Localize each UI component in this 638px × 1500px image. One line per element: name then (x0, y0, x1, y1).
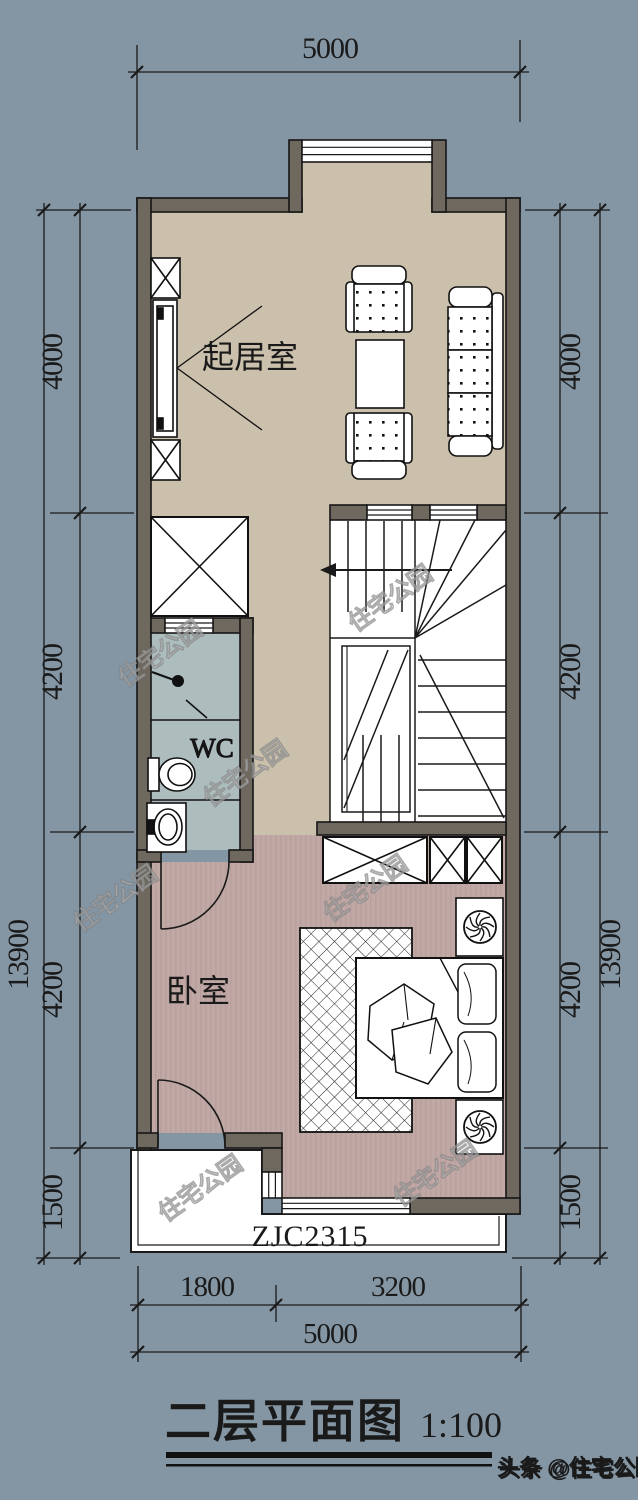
bay-jamb-right (432, 140, 446, 212)
title-block: 二层平面图 1:100 (165, 1396, 502, 1467)
dim-right-4000: 4000 (554, 334, 587, 390)
stair-top-wall-c (477, 505, 506, 520)
dim-left-4200a: 4200 (36, 644, 69, 700)
title-underline-thick (166, 1452, 492, 1458)
wc-right-wall (240, 618, 253, 862)
living-room-label: 起居室 (202, 339, 298, 375)
stair-top-wall-b (412, 505, 430, 520)
title-underline-thin (166, 1464, 492, 1467)
south-wall-right (410, 1198, 520, 1214)
armchair-top (346, 266, 412, 332)
dim-right-4200a: 4200 (554, 644, 587, 700)
toilet (148, 758, 195, 791)
dim-left-1500: 1500 (36, 1175, 69, 1231)
dim-right-4200b: 4200 (554, 962, 587, 1018)
dim-left-total: 13900 (2, 920, 35, 990)
bed (356, 958, 503, 1098)
credit-badge: 头条 @住宅公园 头条 @住宅公园 (497, 1455, 638, 1482)
wc-label: WC (190, 733, 234, 763)
top-wall-left (137, 198, 302, 212)
void-box (151, 517, 248, 616)
floor-plan-drawing: ZJC2315 (0, 0, 638, 1500)
dim-right-1500: 1500 (554, 1175, 587, 1231)
pillow-2 (458, 1032, 496, 1092)
stair-bottom-wall (317, 822, 506, 835)
stair-window-right (430, 505, 477, 520)
wardrobes (323, 837, 502, 883)
plan-scale: 1:100 (420, 1405, 502, 1445)
dim-left-4200b: 4200 (36, 962, 69, 1018)
stair-top-wall-a (330, 505, 367, 520)
dim-bottom-1800: 1800 (180, 1271, 235, 1303)
wc-south-wall-b (229, 850, 253, 862)
dim-left-4000: 4000 (36, 334, 69, 390)
pillow-1 (458, 964, 496, 1024)
fan-icon (464, 911, 496, 943)
credit-text: 头条 @住宅公园 (497, 1455, 638, 1480)
south-wall-b (225, 1133, 282, 1148)
balcony-window-label: ZJC2315 (251, 1220, 368, 1253)
floor-plan-page: ZJC2315 (0, 0, 638, 1500)
dim-bottom-3200: 3200 (371, 1271, 426, 1303)
dim-right-total: 13900 (594, 920, 627, 990)
armchair-bottom (346, 413, 412, 479)
bay-window (302, 140, 432, 162)
bay-jamb-left (289, 140, 302, 212)
corner-window-stub (262, 1148, 282, 1172)
right-wall (506, 198, 520, 1214)
nightstand-top (456, 898, 503, 956)
washbasin (147, 803, 186, 852)
sofa (448, 287, 503, 456)
bay-floor (302, 162, 432, 214)
dim-bottom-5000: 5000 (303, 1318, 358, 1350)
stair-window-left (367, 505, 412, 520)
south-wall-a (137, 1133, 158, 1148)
bedroom-label: 卧室 (166, 973, 230, 1009)
plan-title: 二层平面图 (165, 1396, 405, 1447)
wc-top-wall-a (151, 618, 165, 633)
coffee-table (356, 340, 404, 408)
dim-top: 5000 (302, 32, 358, 65)
